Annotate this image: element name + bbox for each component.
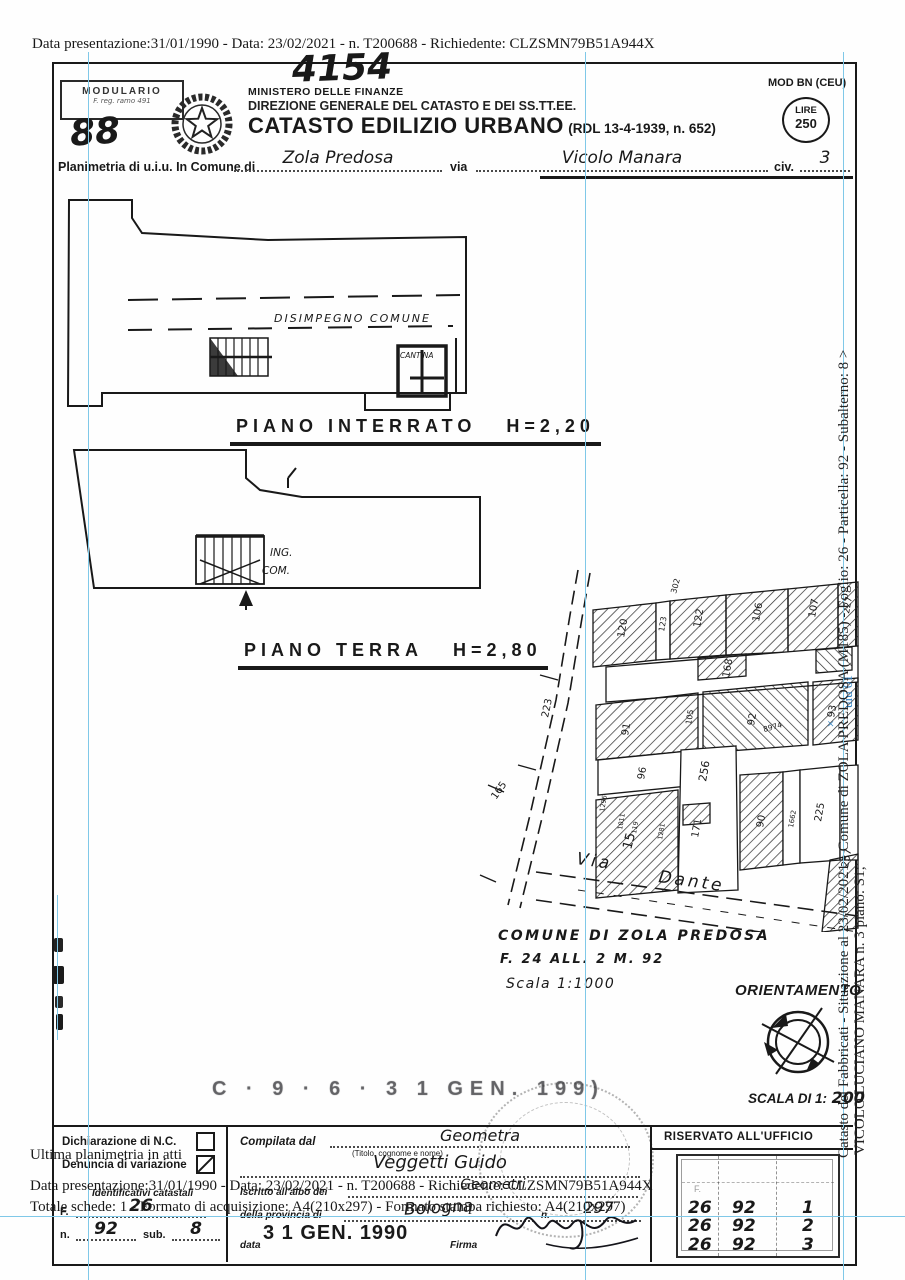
riservato-label: RISERVATO ALL'UFFICIO bbox=[664, 1131, 813, 1143]
riservato-r3c3: 3 bbox=[802, 1235, 814, 1255]
riservato-col-divider-1 bbox=[718, 1156, 720, 1256]
state-emblem-icon bbox=[170, 90, 234, 158]
firma-label: Firma bbox=[450, 1240, 477, 1251]
blue-fold-line-horizontal bbox=[0, 1216, 905, 1217]
floor-plan-interrato: DISIMPEGNO COMUNE CANTINA bbox=[60, 188, 475, 423]
lire-label: LIRE bbox=[784, 105, 828, 116]
civ-value: 3 bbox=[820, 148, 831, 168]
riservato-rule bbox=[652, 1148, 853, 1150]
scan-artifact bbox=[53, 966, 64, 984]
svg-text:90: 90 bbox=[755, 814, 768, 828]
riservato-r3c2: 92 bbox=[732, 1235, 756, 1255]
interrato-corridor-label: DISIMPEGNO COMUNE bbox=[274, 312, 431, 325]
terra-stair bbox=[196, 536, 264, 584]
terra-com-label: COM. bbox=[262, 565, 290, 577]
numero-label: n. bbox=[60, 1229, 70, 1241]
sub-value: 8 bbox=[190, 1219, 202, 1239]
riservato-table: F. 26 92 1 26 92 2 26 92 3 bbox=[676, 1154, 840, 1258]
via-value: Vicolo Manara bbox=[562, 148, 682, 168]
svg-text:96: 96 bbox=[636, 766, 649, 780]
date-stamp: 3 1 GEN. 1990 bbox=[263, 1222, 408, 1245]
numero-field: 92 bbox=[76, 1219, 136, 1241]
compass-icon bbox=[760, 1004, 836, 1080]
overlay-ultima-line: Ultima planimetria in atti bbox=[30, 1147, 182, 1164]
data-label: data bbox=[240, 1240, 261, 1251]
checkbox-check-mark bbox=[198, 1156, 215, 1173]
handwritten-sheet-number: 88 bbox=[69, 110, 122, 154]
riservato-f-faint: F. bbox=[694, 1184, 701, 1194]
compilata-label: Compilata dal bbox=[240, 1136, 315, 1148]
interrato-outline bbox=[68, 200, 466, 410]
blue-margin-line bbox=[57, 895, 58, 1040]
map-measure-165: 165 bbox=[489, 780, 509, 802]
terra-ing-label: ING. bbox=[270, 547, 292, 559]
interrato-cantina-label: CANTINA bbox=[400, 351, 434, 360]
document-title-ref: (RDL 13-4-1939, n. 652) bbox=[568, 121, 716, 136]
compilata-value: Geometra bbox=[440, 1126, 520, 1145]
riservato-r2c3: 2 bbox=[802, 1216, 814, 1236]
blue-fold-line-center bbox=[585, 52, 586, 1280]
right-margin-line1: Catasto dei Fabbricati - Situazione al 2… bbox=[836, 350, 853, 1158]
denuncia-checkbox-checked bbox=[196, 1155, 215, 1174]
scala-label: SCALA DI 1: bbox=[748, 1091, 827, 1106]
riservato-r2c1: 26 bbox=[688, 1216, 712, 1236]
svg-text:92: 92 bbox=[746, 712, 759, 726]
handwritten-protocol-number: 4154 bbox=[291, 46, 393, 90]
riservato-r1c2: 92 bbox=[732, 1198, 756, 1218]
nome-value: Veggetti Guido bbox=[373, 1152, 507, 1173]
nome-field: Veggetti Guido bbox=[240, 1152, 640, 1178]
lire-value: 250 bbox=[784, 116, 828, 131]
map-note-scala: Scala 1:1000 bbox=[506, 976, 615, 992]
blue-x-mark: × bbox=[827, 716, 834, 732]
riservato-r3c1: 26 bbox=[688, 1235, 712, 1255]
riservato-r2c2: 92 bbox=[732, 1216, 756, 1236]
riservato-header-rule bbox=[682, 1182, 834, 1183]
document-title: CATASTO EDILIZIO URBANO bbox=[248, 113, 564, 138]
riservato-r1c1: 26 bbox=[688, 1198, 712, 1218]
riservato-r1c3: 1 bbox=[802, 1198, 814, 1218]
cadastral-map: 223 165 bbox=[478, 560, 860, 932]
lire-stamp: LIRE 250 bbox=[782, 97, 830, 143]
numero-value: 92 bbox=[94, 1219, 118, 1239]
interrato-stair bbox=[210, 338, 272, 376]
comune-value: Zola Predosa bbox=[283, 148, 394, 168]
direzione-line: DIREZIONE GENERALE DEL CATASTO E DEI SS.… bbox=[248, 99, 576, 113]
via-dante-word1: Via bbox=[575, 849, 613, 874]
svg-text:91: 91 bbox=[620, 722, 633, 736]
modulario-label: MODULARIO bbox=[62, 86, 182, 97]
civ-label: civ. bbox=[774, 160, 794, 174]
mod-label: MOD BN (CEU) bbox=[768, 77, 846, 89]
interrato-height: H=2,20 bbox=[506, 416, 595, 436]
via-field: Vicolo Manara bbox=[476, 148, 768, 172]
ministero-line: MINISTERO DELLE FINANZE bbox=[248, 86, 404, 98]
document-title-row: CATASTO EDILIZIO URBANO (RDL 13-4-1939, … bbox=[248, 113, 716, 139]
dichiarazione-checkbox bbox=[196, 1132, 215, 1151]
scan-artifact bbox=[54, 938, 63, 952]
riservato-col-divider-2 bbox=[776, 1156, 778, 1256]
map-note-comune: COMUNE DI ZOLA PREDOSA bbox=[498, 928, 770, 944]
cadastral-document-page: Data presentazione:31/01/1990 - Data: 23… bbox=[0, 0, 905, 1280]
sub-field: 8 bbox=[172, 1219, 220, 1241]
terra-caption-text: PIANO TERRA bbox=[244, 640, 423, 660]
map-note-foglio: F. 24 ALL. 2 M. 92 bbox=[500, 952, 664, 967]
overlay-data-line: Data presentazione:31/01/1990 - Data: 23… bbox=[30, 1178, 653, 1195]
floor-plan-terra: ING. COM. bbox=[60, 440, 490, 650]
modulario-sub: F. reg. ramo 491 bbox=[62, 97, 182, 105]
svg-text:302: 302 bbox=[669, 577, 682, 594]
header-rule bbox=[540, 176, 853, 179]
overlay-totale-line: Totale schede: 1 - Formato di acquisizio… bbox=[30, 1199, 626, 1216]
right-margin-line2: VICOLO LUCIANO MANARA n. 3 piano: S1; bbox=[852, 866, 869, 1155]
blue-fold-line-left bbox=[88, 52, 89, 1280]
via-label: via bbox=[450, 160, 467, 174]
comune-field: Zola Predosa bbox=[234, 148, 442, 172]
sub-label: sub. bbox=[143, 1229, 166, 1241]
interrato-caption-text: PIANO INTERRATO bbox=[236, 416, 476, 436]
